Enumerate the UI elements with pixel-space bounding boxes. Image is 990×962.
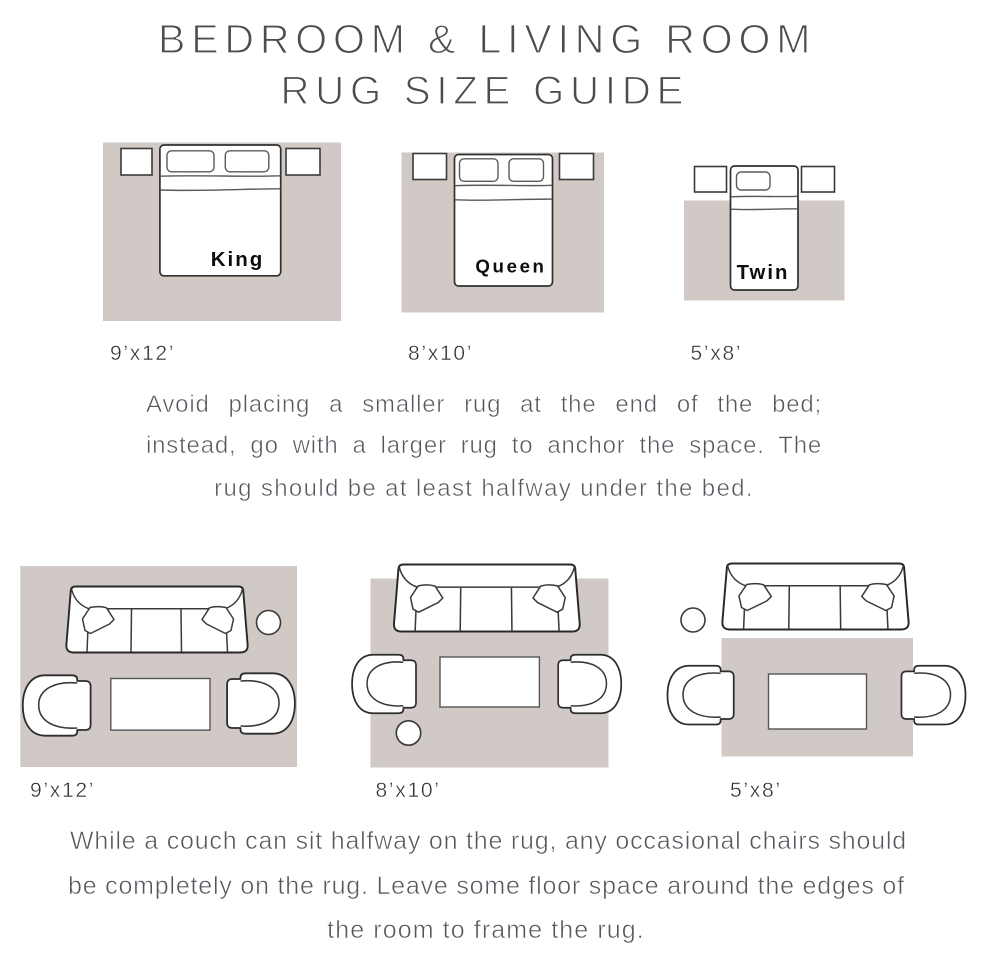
svg-text:Queen: Queen bbox=[475, 255, 546, 276]
svg-text:King: King bbox=[211, 248, 265, 271]
svg-text:Twin: Twin bbox=[737, 262, 790, 284]
